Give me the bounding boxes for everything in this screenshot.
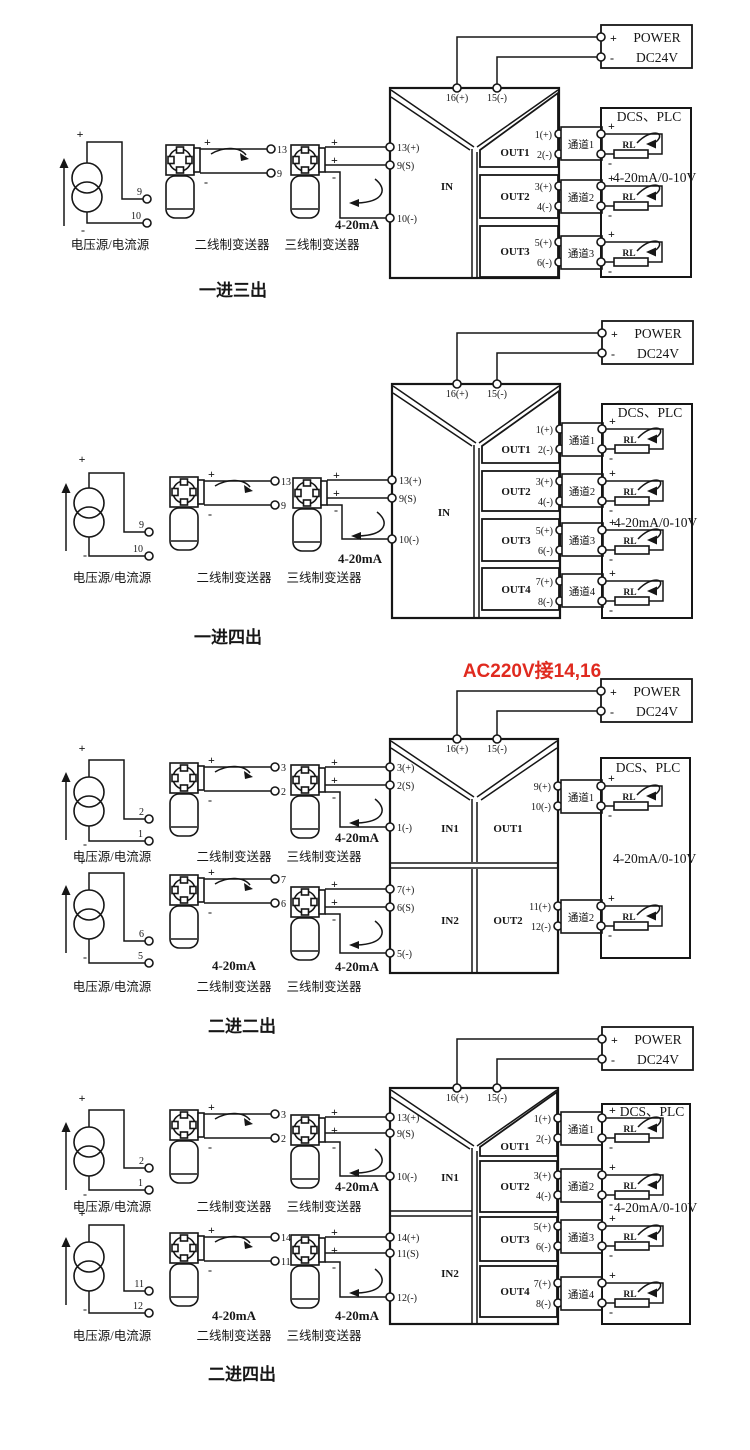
terminal-node	[388, 476, 396, 484]
terminal-label: 12(-)	[397, 1293, 417, 1304]
power-box	[597, 25, 692, 68]
terminal-node	[145, 1287, 153, 1295]
terminal-node	[386, 214, 394, 222]
terminal-label: 6(-)	[536, 1242, 551, 1253]
terminal-node	[145, 937, 153, 945]
terminal-node	[145, 1309, 153, 1317]
terminal-label: 8(-)	[536, 1299, 551, 1310]
source-symbol	[62, 452, 105, 562]
channel-label: 通道1	[568, 1123, 594, 1136]
section-title: 一进三出	[199, 280, 267, 300]
terminal-node	[145, 552, 153, 560]
io-range-label: 4-20mA/0-10V	[613, 170, 696, 185]
terminal-label: 13(+)	[397, 143, 419, 154]
rl-load	[597, 891, 662, 942]
loop-current-label: 4-20mA	[335, 1179, 380, 1194]
source-label: 电压源/电流源	[73, 571, 152, 585]
terminal-node	[453, 1084, 461, 1092]
two-wire-transmitter-label: 二线制变送器	[196, 1328, 272, 1343]
two-wire-transmitter-label: 二线制变送器	[196, 1199, 272, 1214]
channel-label: 通道2	[568, 1180, 594, 1193]
terminal-label: 2(-)	[536, 1134, 551, 1145]
loop-current-label: 4-20mA	[212, 958, 257, 973]
terminal-label: 8(-)	[538, 597, 553, 608]
terminal-label: 10(-)	[531, 802, 551, 813]
terminal-node	[453, 735, 461, 743]
terminal-node	[453, 380, 461, 388]
terminal-node	[145, 837, 153, 845]
channel-label: 通道2	[568, 191, 594, 204]
terminal-label: 15(-)	[487, 1093, 507, 1104]
terminal-label: 1	[138, 1178, 143, 1189]
terminal-label: 4(-)	[536, 1191, 551, 1202]
two-wire-transmitter	[170, 753, 279, 836]
terminal-label: 5(+)	[534, 1222, 551, 1233]
io-range-label: 4-20mA/0-10V	[614, 1200, 697, 1215]
terminal-label: 16(+)	[446, 389, 468, 400]
in1-label: IN1	[441, 1172, 459, 1184]
terminal-label: 16(+)	[446, 744, 468, 755]
rl-load	[598, 1268, 663, 1319]
channel-label: 通道1	[569, 434, 595, 447]
terminal-label: 1	[138, 829, 143, 840]
two-wire-transmitter	[170, 1223, 279, 1306]
terminal-label: 6	[281, 899, 286, 910]
terminal-label: 2	[139, 1156, 144, 1167]
terminal-label: 2	[139, 807, 144, 818]
terminal-label: 15(-)	[487, 389, 507, 400]
out2-label: OUT2	[501, 486, 531, 498]
terminal-label: 13(+)	[399, 476, 421, 487]
in-label: IN	[441, 181, 453, 193]
three-wire-transmitter-label: 三线制变送器	[284, 237, 360, 252]
wiring-diagram-svg: + - + - + + - + - RL	[0, 0, 750, 1450]
terminal-label: 9	[281, 501, 286, 512]
diagram-1in3out: OUT1 OUT2 OUT3 IN 16(+) 15(-) 13(+) 9(S)…	[60, 25, 697, 300]
channel-label: 通道3	[568, 247, 594, 260]
two-wire-transmitter-label: 二线制变送器	[196, 570, 272, 585]
out2-label: OUT2	[493, 915, 523, 927]
three-wire-transmitter-label: 三线制变送器	[286, 849, 362, 864]
terminal-label: 10	[131, 211, 141, 222]
source-label: 电压源/电流源	[71, 238, 150, 252]
terminal-label: 3(+)	[397, 763, 414, 774]
terminal-label: 14(+)	[397, 1233, 419, 1244]
section-title: 二进四出	[208, 1364, 276, 1384]
terminal-label: 1(+)	[536, 425, 553, 436]
two-wire-transmitter	[166, 135, 275, 218]
terminal-label: 9	[277, 169, 282, 180]
out1-label: OUT1	[500, 147, 529, 159]
terminal-label: 2(-)	[537, 150, 552, 161]
terminal-node	[145, 959, 153, 967]
terminal-node	[493, 1084, 501, 1092]
in2-label: IN2	[441, 1268, 459, 1280]
out4-label: OUT4	[500, 1286, 530, 1298]
source-symbol	[62, 854, 105, 964]
terminal-node	[145, 815, 153, 823]
terminal-label: 3(+)	[534, 1171, 551, 1182]
terminal-node	[143, 219, 151, 227]
two-wire-transmitter	[170, 865, 279, 948]
terminal-label: 9(S)	[397, 1129, 414, 1140]
loop-current-label: 4-20mA	[338, 551, 383, 566]
power-wires	[457, 333, 598, 384]
terminal-label: 15(-)	[487, 744, 507, 755]
terminal-node	[145, 1164, 153, 1172]
terminal-label: 4(-)	[538, 497, 553, 508]
ac-power-note: AC220V接14,16	[463, 660, 601, 682]
source-label: 电压源/电流源	[73, 980, 152, 994]
terminal-node	[386, 1233, 394, 1241]
terminal-label: 1(+)	[535, 130, 552, 141]
terminal-label: 12	[133, 1301, 143, 1312]
terminal-label: 3	[281, 1110, 286, 1121]
loop-current-label: 4-20mA	[335, 1308, 380, 1323]
terminal-node	[386, 781, 394, 789]
terminal-node	[386, 763, 394, 771]
out4-label: OUT4	[501, 584, 531, 596]
three-wire-transmitter-label: 三线制变送器	[286, 570, 362, 585]
terminal-label: 15(-)	[487, 93, 507, 104]
terminal-label: 9(+)	[534, 782, 551, 793]
dcs-plc-title: DCS、PLC	[618, 405, 683, 420]
terminal-node	[386, 1172, 394, 1180]
dcs-plc-title: DCS、PLC	[616, 760, 681, 775]
two-wire-transmitter-label: 二线制变送器	[194, 237, 270, 252]
terminal-label: 13	[281, 477, 291, 488]
terminal-node	[388, 535, 396, 543]
terminal-label: 6(-)	[537, 258, 552, 269]
terminal-label: 10(-)	[397, 214, 417, 225]
channel-label: 通道3	[569, 534, 595, 547]
terminal-label: 3(+)	[536, 477, 553, 488]
terminal-node	[145, 528, 153, 536]
dcs-plc-title: DCS、PLC	[617, 109, 682, 124]
in-label: IN	[438, 507, 450, 519]
rl-load	[597, 771, 662, 822]
terminal-node	[493, 735, 501, 743]
rl-load	[598, 466, 663, 517]
terminal-node	[386, 903, 394, 911]
terminal-label: 10(-)	[399, 535, 419, 546]
terminal-label: 3(+)	[535, 182, 552, 193]
terminal-node	[386, 885, 394, 893]
two-wire-transmitter	[170, 1100, 279, 1183]
terminal-label: 9	[137, 187, 142, 198]
out1-label: OUT1	[500, 1141, 529, 1153]
out2-label: OUT2	[500, 191, 530, 203]
power-box	[598, 1027, 693, 1070]
terminal-node	[386, 1293, 394, 1301]
terminal-label: 5(+)	[536, 526, 553, 537]
out3-label: OUT3	[500, 246, 530, 258]
channel-label: 通道2	[569, 485, 595, 498]
terminal-label: 14	[281, 1233, 291, 1244]
terminal-node	[493, 380, 501, 388]
channel-label: 通道2	[568, 911, 594, 924]
dcs-plc-title: DCS、PLC	[620, 1104, 685, 1119]
terminal-label: 2	[281, 787, 286, 798]
terminal-label: 2(S)	[397, 781, 414, 792]
power-box	[597, 679, 692, 722]
terminal-node	[386, 949, 394, 957]
source-label: 电压源/电流源	[73, 1329, 152, 1343]
io-range-label: 4-20mA/0-10V	[613, 851, 696, 866]
source-symbol	[62, 1091, 105, 1201]
terminal-label: 1(+)	[534, 1114, 551, 1125]
power-wires	[457, 1039, 598, 1088]
power-wires	[457, 691, 597, 739]
terminal-label: 11	[281, 1257, 291, 1268]
terminal-label: 11(S)	[397, 1249, 419, 1260]
in1-label: IN1	[441, 823, 459, 835]
terminal-label: 5(+)	[535, 238, 552, 249]
loop-current-label: 4-20mA	[335, 830, 380, 845]
in2-label: IN2	[441, 915, 459, 927]
dcs-plc-box	[602, 404, 692, 618]
power-wires	[457, 37, 597, 88]
loop-current-label: 4-20mA	[212, 1308, 257, 1323]
terminal-label: 3	[281, 763, 286, 774]
terminal-label: 9(S)	[397, 161, 414, 172]
rl-load	[597, 119, 662, 170]
terminal-node	[386, 1249, 394, 1257]
terminal-label: 5(-)	[397, 949, 412, 960]
terminal-label: 7(+)	[536, 577, 553, 588]
three-wire-transmitter-label: 三线制变送器	[286, 1328, 362, 1343]
terminal-label: 13	[277, 145, 287, 156]
terminal-node	[386, 143, 394, 151]
section-title: 二进二出	[208, 1016, 276, 1036]
source-symbol	[62, 741, 105, 851]
terminal-label: 1(-)	[397, 823, 412, 834]
terminal-label: 6	[139, 929, 144, 940]
source-symbol	[62, 1206, 105, 1316]
terminal-node	[386, 823, 394, 831]
out1-label: OUT1	[493, 823, 522, 835]
loop-current-label: 4-20mA	[335, 217, 380, 232]
terminal-node	[143, 195, 151, 203]
loop-current-label: 4-20mA	[335, 959, 380, 974]
terminal-label: 7(+)	[534, 1279, 551, 1290]
diagram-2in4out: OUT1 OUT2 OUT3 OUT4 IN1 IN2 16(+) 15(-) …	[62, 1027, 698, 1384]
out2-label: OUT2	[500, 1181, 530, 1193]
terminal-label: 6(S)	[397, 903, 414, 914]
terminal-label: 16(+)	[446, 1093, 468, 1104]
three-wire-transmitter-label: 三线制变送器	[286, 979, 362, 994]
two-wire-transmitter-label: 二线制变送器	[196, 979, 272, 994]
two-wire-transmitter-label: 二线制变送器	[196, 849, 272, 864]
channel-label: 通道1	[568, 791, 594, 804]
source-symbol	[60, 127, 103, 237]
terminal-label: 16(+)	[446, 93, 468, 104]
channel-label: 通道4	[569, 585, 596, 598]
terminal-node	[386, 1113, 394, 1121]
rl-load	[597, 227, 662, 278]
diagram-1in4out: OUT1 OUT2 OUT3 OUT4 IN 16(+) 15(-) 13(+)…	[62, 321, 698, 647]
terminal-label: 2	[281, 1134, 286, 1145]
terminal-node	[386, 1129, 394, 1137]
three-wire-transmitter-label: 三线制变送器	[286, 1199, 362, 1214]
out1-label: OUT1	[501, 444, 530, 456]
rl-load	[598, 1211, 663, 1262]
out3-label: OUT3	[500, 1234, 530, 1246]
terminal-node	[493, 84, 501, 92]
terminal-label: 7	[281, 875, 286, 886]
rl-load	[598, 566, 663, 617]
diagram-2in2out: AC220V接14,16 IN1 OUT1 IN2 OUT2 16(+) 15(…	[62, 660, 697, 1036]
isolator-block	[390, 739, 558, 973]
section-title: 一进四出	[194, 627, 262, 647]
terminal-node	[453, 84, 461, 92]
terminal-label: 5	[138, 951, 143, 962]
channel-label: 通道1	[568, 138, 594, 151]
terminal-node	[388, 494, 396, 502]
terminal-label: 11(+)	[529, 902, 551, 913]
io-range-label: 4-20mA/0-10V	[614, 515, 697, 530]
wiring-diagram-page: + - + - + + - + - RL	[0, 0, 750, 1450]
channel-label: 通道3	[568, 1231, 594, 1244]
two-wire-transmitter	[170, 467, 279, 550]
rl-load	[598, 414, 663, 465]
terminal-label: 7(+)	[397, 885, 414, 896]
terminal-label: 9(S)	[399, 494, 416, 505]
channel-label: 通道4	[568, 1288, 595, 1301]
power-box	[598, 321, 693, 364]
terminal-label: 12(-)	[531, 922, 551, 933]
terminal-label: 6(-)	[538, 546, 553, 557]
terminal-label: 10(-)	[397, 1172, 417, 1183]
terminal-label: 4(-)	[537, 202, 552, 213]
terminal-node	[145, 1186, 153, 1194]
terminal-label: 9	[139, 520, 144, 531]
terminal-label: 11	[134, 1279, 144, 1290]
terminal-node	[386, 161, 394, 169]
terminal-label: 10	[133, 544, 143, 555]
terminal-label: 13(+)	[397, 1113, 419, 1124]
out3-label: OUT3	[501, 535, 531, 547]
terminal-label: 2(-)	[538, 445, 553, 456]
